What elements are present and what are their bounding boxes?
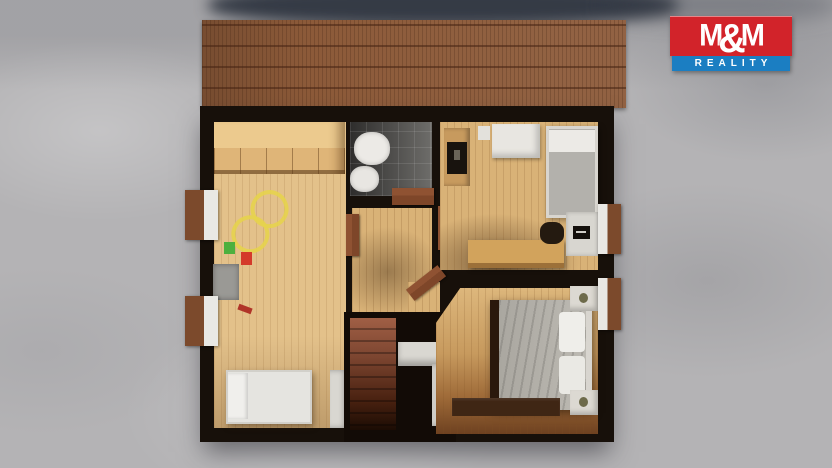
tiled-roof xyxy=(202,20,626,108)
bed-frame-edge xyxy=(490,300,499,410)
storage-boxes xyxy=(492,124,540,158)
agency-logo: M&M REALITY xyxy=(670,16,792,71)
desk xyxy=(566,212,598,256)
children-single-bed xyxy=(226,370,312,424)
room-bathroom-floor xyxy=(350,122,432,196)
floorplan-building xyxy=(200,106,614,442)
screenshot-stage: M&M REALITY xyxy=(0,0,832,468)
plant-icon xyxy=(579,293,588,303)
door-children-room xyxy=(346,214,359,256)
toy-block-red xyxy=(241,252,252,265)
nightstand-bottom xyxy=(570,390,598,415)
staircase xyxy=(350,318,396,430)
pillow xyxy=(559,356,585,394)
wardrobe xyxy=(214,122,345,174)
wooden-table xyxy=(468,240,564,268)
logo-ampersand: & xyxy=(718,18,743,59)
toilet xyxy=(354,132,390,165)
logo-m2: M xyxy=(741,20,763,51)
window xyxy=(598,204,621,254)
window xyxy=(185,296,218,346)
pillow xyxy=(559,312,585,352)
plant-icon xyxy=(579,397,588,407)
office-chair xyxy=(540,222,564,244)
storage-box-small xyxy=(478,126,490,140)
tv-cabinet xyxy=(444,128,470,186)
dresser xyxy=(452,398,560,416)
bidet xyxy=(350,166,379,192)
toy-block-green xyxy=(224,242,235,254)
window xyxy=(185,190,218,240)
window xyxy=(598,278,621,330)
tv-icon xyxy=(447,142,467,174)
toy-box xyxy=(213,264,239,300)
logo-brand-box: M&M xyxy=(670,16,792,56)
laptop-icon xyxy=(573,226,590,239)
nightstand-top xyxy=(570,286,598,311)
door-bathroom xyxy=(392,188,434,205)
study-single-bed xyxy=(546,126,598,218)
